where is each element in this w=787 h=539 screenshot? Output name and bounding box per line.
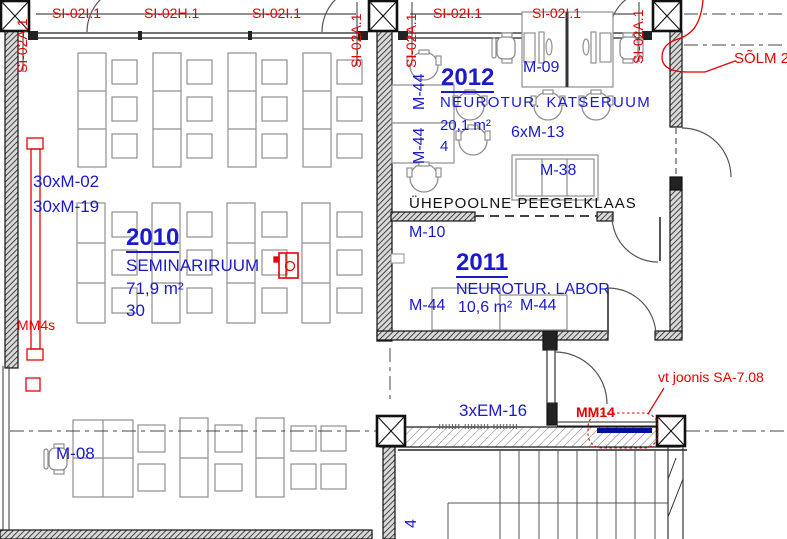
door-arc-2011-bottom — [608, 288, 656, 336]
detail-note-label: vt joonis SA-7.08 — [658, 370, 764, 384]
room-2012-area: 20,1 m² — [440, 118, 491, 133]
bottom-sill — [557, 422, 656, 426]
wall-tag: SI-02I.1 — [532, 6, 581, 20]
wall-tag: SI-02I.1 — [52, 6, 101, 20]
wall-tag: SI-02I.1 — [433, 6, 482, 20]
wall-tag-vertical: SI-02A.1 — [631, 10, 645, 64]
wall-tag-vertical: SI-02A.1 — [349, 14, 363, 68]
room-2012-number: 2012 — [441, 66, 494, 93]
note-leader-line — [648, 388, 664, 414]
room-2010-area: 71,9 m² — [126, 280, 184, 297]
radiator-ticks — [437, 424, 517, 429]
room-2010-desks — [77, 53, 362, 323]
room-2011-name: NEUROTUR. LABOR — [456, 282, 610, 298]
room-2010-name: SEMINARIRUUM — [126, 257, 259, 274]
mm4s-label: MM4s — [17, 318, 55, 332]
wall-tag: SI-02I.1 — [252, 6, 301, 20]
door-leaf-bottom — [547, 350, 555, 403]
door-arc-bottom — [555, 352, 607, 404]
m10-label: M-10 — [409, 225, 445, 241]
wall-2011-south-right — [557, 331, 608, 340]
wall-2010-2012 — [377, 31, 392, 341]
room-2010-furniture-a: 30xM-02 — [33, 173, 99, 190]
wall-east-upper — [670, 31, 682, 127]
wall-glass-left — [391, 212, 475, 221]
mirror-glass-note: ÜHEPOOLNE PEEGELKLAAS — [409, 196, 637, 211]
m09-label: M-09 — [523, 60, 559, 76]
room-2012-chairs-label: 6xM-13 — [511, 125, 564, 141]
mm14-label: MM14 — [576, 405, 615, 419]
wall-east-lower — [670, 190, 682, 333]
door-post — [547, 403, 557, 425]
wall-notch — [391, 254, 404, 263]
mm4s-bracket-bottom — [27, 349, 43, 360]
m44-label-vertical: M-44 — [412, 128, 428, 164]
m38-label: M-38 — [540, 163, 576, 179]
solm-callout-label: SÕLM 2 — [734, 51, 787, 66]
wall-southwest — [0, 530, 372, 539]
wall-stub — [670, 177, 682, 190]
wall-thin-lines — [3, 366, 9, 531]
mm4s-bracket-top — [27, 138, 43, 149]
wall-tag: SI-02H.1 — [144, 6, 199, 20]
room-2010-furniture-b: 30xM-19 — [33, 198, 99, 215]
door-arc-corridor — [682, 128, 731, 177]
wall-device-symbol — [26, 378, 40, 391]
room-2011-area: 10,6 m² — [458, 300, 512, 316]
stair-wall — [383, 447, 395, 539]
wall-2011-south-left — [377, 331, 544, 340]
mm14-element-bar — [597, 428, 652, 433]
room-2010-capacity: 30 — [126, 302, 145, 319]
m08-desks — [73, 418, 346, 497]
room-2012-capacity: 4 — [440, 139, 448, 154]
m44-right-label: M-44 — [520, 298, 556, 314]
stair-tag-label: 4 — [404, 519, 420, 528]
door-arc-2011-top — [612, 216, 658, 262]
floor-plan: SI-02I.1 SI-02H.1 SI-02I.1 SI-02I.1 SI-0… — [0, 0, 787, 539]
wall-glass-right — [597, 212, 613, 221]
m44-left-label: M-44 — [409, 298, 445, 314]
room-2011-number: 2011 — [456, 251, 508, 278]
wall-tag-vertical: SI-02A.1 — [404, 14, 418, 68]
wall-2011-corner — [655, 331, 682, 340]
room-2012-name: NEUROTUR. KATSERUUM — [440, 95, 651, 110]
wall-post — [543, 331, 557, 350]
room-2010-number: 2010 — [126, 226, 179, 253]
m08-label: M-08 — [56, 445, 95, 462]
staircase — [398, 447, 687, 539]
m44-label-vertical: M-44 — [412, 74, 428, 110]
wall-tag-vertical: SI-02A.1 — [15, 19, 29, 73]
floor-plan-drawing — [0, 0, 787, 539]
em16-label: 3xEM-16 — [459, 402, 527, 419]
